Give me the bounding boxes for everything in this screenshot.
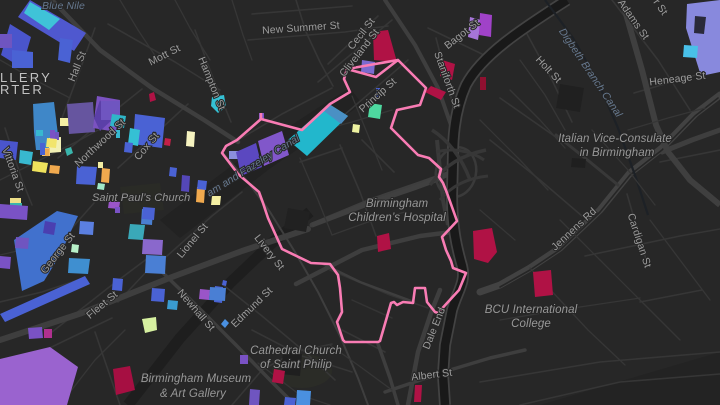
svg-text:Blue Nile: Blue Nile — [42, 0, 85, 12]
svg-text:Italian Vice-Consulate: Italian Vice-Consulate — [558, 133, 672, 145]
svg-text:College: College — [511, 318, 551, 330]
svg-text:of Saint Philip: of Saint Philip — [260, 359, 332, 371]
svg-text:Saint Paul’s Church: Saint Paul’s Church — [92, 192, 190, 204]
svg-text:& Art Gallery: & Art Gallery — [160, 388, 227, 400]
svg-text:Birmingham Museum: Birmingham Museum — [141, 373, 252, 385]
svg-text:in Birmingham: in Birmingham — [580, 147, 655, 159]
svg-text:Cathedral Church: Cathedral Church — [250, 345, 342, 357]
svg-text:Children’s Hospital: Children’s Hospital — [348, 212, 446, 224]
svg-text:BCU International: BCU International — [485, 304, 578, 316]
svg-text:Birmingham: Birmingham — [366, 198, 429, 210]
svg-text:RTER: RTER — [0, 82, 44, 97]
